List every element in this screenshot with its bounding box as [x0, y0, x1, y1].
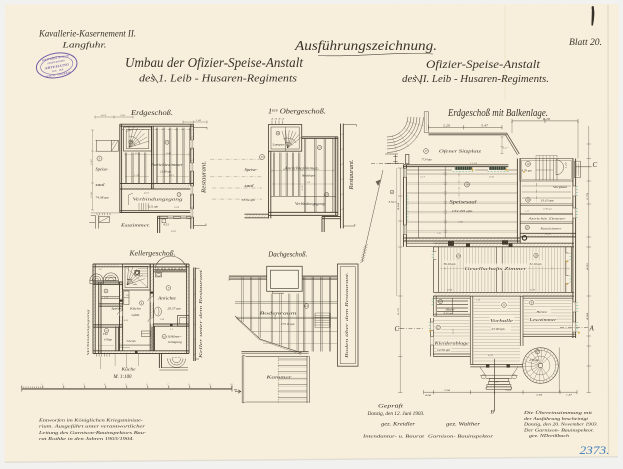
- svg-text:saal: saal: [96, 182, 106, 187]
- svg-text:Keller unter dem Restaurant: Keller unter dem Restaurant: [199, 268, 203, 360]
- svg-text:4.50qm: 4.50qm: [104, 339, 112, 342]
- svg-text:Ofizier-Speise-Anstalt: Ofizier-Speise-Anstalt: [426, 57, 541, 71]
- svg-text:Rauchzimmer: Rauchzimmer: [539, 227, 562, 231]
- svg-text:Dachgeschoß.: Dachgeschoß.: [267, 251, 307, 259]
- svg-text:Ofener Sitzplatz: Ofener Sitzplatz: [439, 148, 481, 153]
- svg-text:90: 90: [126, 295, 129, 297]
- svg-text:gez. NDreißbach: gez. NDreißbach: [529, 433, 570, 438]
- svg-text:4.21: 4.21: [169, 174, 174, 177]
- svg-text:77.34 qm: 77.34 qm: [422, 159, 432, 162]
- svg-text:Langfuhr.: Langfuhr.: [61, 40, 106, 50]
- svg-text:Anrichte: Anrichte: [157, 297, 177, 301]
- svg-text:31.10 qm: 31.10 qm: [530, 263, 542, 266]
- svg-text:des II. Leib - Husaren-Regime: des II. Leib - Husaren-Regiments.: [402, 74, 549, 85]
- svg-text:Anrichtezimmer: Anrichtezimmer: [150, 163, 184, 167]
- svg-text:Intendantur- u. Baurat: Intendantur- u. Baurat: [362, 434, 426, 439]
- svg-text:Ausführungszeichnung.: Ausführungszeichnung.: [294, 39, 437, 54]
- svg-text:Erdgeschoß.: Erdgeschoß.: [130, 108, 173, 117]
- svg-text:11: 11: [105, 329, 107, 332]
- svg-text:Erdgeschoß mit Balkenlage.: Erdgeschoß mit Balkenlage.: [447, 108, 548, 119]
- svg-text:Der Garnison- Bauinspektor.: Der Garnison- Bauinspektor.: [523, 427, 594, 432]
- svg-text:1: 1: [41, 384, 42, 386]
- svg-text:Vorhalle: Vorhalle: [490, 318, 513, 323]
- svg-text:Speisesaal: Speisesaal: [450, 200, 478, 205]
- svg-text:4.51: 4.51: [163, 224, 170, 227]
- svg-text:auf: auf: [127, 278, 133, 281]
- svg-text:Speisek.: Speisek.: [112, 307, 123, 311]
- svg-text:gez. Kreidler: gez. Kreidler: [381, 423, 415, 428]
- svg-text:Heizkörper: Heizkörper: [301, 175, 316, 178]
- svg-text:Verbindungsgang: Verbindungsgang: [133, 198, 183, 202]
- svg-text:4.6qm: 4.6qm: [389, 201, 397, 204]
- svg-text:Gefälle: Gefälle: [132, 314, 141, 317]
- svg-text:Flur: Flur: [102, 333, 109, 336]
- svg-text:Speise-: Speise-: [245, 167, 258, 172]
- svg-text:Leitung des Garnison-Bauinspek: Leitung des Garnison-Bauinspektors Bau-: [38, 430, 147, 435]
- svg-text:2.60: 2.60: [160, 319, 164, 321]
- svg-text:Danzig, den 12. Juni 1903.: Danzig, den 12. Juni 1903.: [366, 412, 424, 417]
- svg-text:Abort: Abort: [444, 309, 455, 312]
- svg-text:53.34 qm: 53.34 qm: [242, 198, 256, 202]
- svg-text:Silber-: Silber-: [168, 336, 182, 339]
- svg-text:rium. Ausgeführt unter verant: rium. Ausgeführt unter verantwortlicher: [39, 424, 145, 429]
- svg-text:5.47: 5.47: [481, 125, 489, 128]
- svg-text:m: m: [234, 389, 237, 392]
- svg-text:4: 4: [104, 383, 105, 386]
- svg-text:13: 13: [261, 155, 265, 159]
- svg-text:9: 9: [209, 384, 210, 386]
- svg-text:M. 1:100: M. 1:100: [113, 375, 132, 380]
- svg-text:4.79 qm: 4.79 qm: [522, 170, 532, 173]
- svg-text:1.26: 1.26: [476, 300, 480, 302]
- svg-text:Kleiderablage: Kleiderablage: [433, 341, 469, 345]
- svg-text:Esszimmer.: Esszimmer.: [119, 222, 150, 227]
- svg-text:Anrichtezimmer: Anrichtezimmer: [283, 167, 318, 171]
- svg-text:173.11 qm: 173.11 qm: [281, 322, 296, 326]
- svg-text:8.21 qm: 8.21 qm: [148, 206, 158, 209]
- svg-text:21.38 qm: 21.38 qm: [160, 171, 171, 174]
- svg-text:4.70 qm: 4.70 qm: [529, 359, 539, 362]
- svg-text:131.63 qm: 131.63 qm: [452, 209, 474, 213]
- svg-text:saal: saal: [245, 183, 255, 188]
- svg-text:1tes Obergeschoß.: 1tes Obergeschoß.: [268, 107, 326, 116]
- svg-text:2373.: 2373.: [580, 443, 610, 457]
- svg-text:5.04 qm: 5.04 qm: [127, 340, 136, 343]
- svg-text:gez. Walther: gez. Walther: [446, 423, 480, 428]
- svg-text:4.05: 4.05: [124, 319, 128, 322]
- svg-text:des 1. Leib - Husaren-Regimen: des 1. Leib - Husaren-Regiments: [139, 74, 297, 85]
- svg-text:Umbau der Ofizier-Speise-Ansta: Umbau der Ofizier-Speise-Anstalt: [125, 55, 304, 70]
- svg-text:1.30: 1.30: [104, 297, 108, 299]
- svg-text:3 3 3 3: 3 3 3 3: [271, 118, 286, 121]
- svg-text:4.21: 4.21: [144, 192, 149, 195]
- svg-text:A: A: [589, 325, 595, 333]
- svg-text:2.0: 2.0: [99, 269, 102, 271]
- svg-text:Lampen: Lampen: [271, 143, 285, 147]
- svg-text:Vorplatz: Vorplatz: [553, 186, 568, 189]
- svg-text:reinigung: reinigung: [168, 341, 183, 344]
- svg-text:2: 2: [62, 384, 63, 386]
- svg-text:Verbindungsgang: Verbindungsgang: [86, 309, 90, 356]
- svg-text:Boden über dem Restaurant.: Boden über dem Restaurant.: [345, 272, 349, 358]
- svg-text:1.01: 1.01: [437, 233, 441, 235]
- svg-text:2.20: 2.20: [443, 124, 451, 127]
- svg-text:Speise-: Speise-: [96, 167, 109, 172]
- svg-text:Restaurant.: Restaurant.: [202, 161, 208, 194]
- svg-text:rat Rothke in den Jahren 1903/: rat Rothke in den Jahren 1903/1904.: [39, 436, 134, 441]
- svg-text:Restaurant.: Restaurant.: [349, 160, 355, 191]
- svg-text:8.10: 8.10: [543, 118, 551, 121]
- svg-text:Die Übereinstimmung mit: Die Übereinstimmung mit: [523, 410, 594, 415]
- svg-text:26.57 qm: 26.57 qm: [168, 308, 181, 311]
- svg-text:3.30 qm: 3.30 qm: [543, 209, 553, 211]
- svg-text:11: 11: [439, 300, 441, 303]
- svg-text:Garnison- Bauinspektor: Garnison- Bauinspektor: [428, 434, 493, 439]
- svg-text:36.10 qm: 36.10 qm: [444, 263, 456, 266]
- svg-text:4.50 qm: 4.50 qm: [444, 312, 453, 315]
- svg-text:7.01: 7.01: [505, 389, 511, 392]
- svg-text:1.5: 1.5: [170, 329, 173, 331]
- svg-text:5: 5: [125, 384, 126, 386]
- svg-text:Gesellschafts Zimmer: Gesellschafts Zimmer: [465, 266, 527, 271]
- svg-text:Kavallerie-Kasernement II.: Kavallerie-Kasernement II.: [38, 29, 136, 39]
- svg-text:Anrichte Zimmer: Anrichte Zimmer: [527, 216, 567, 220]
- svg-text:13.10 qm: 13.10 qm: [541, 200, 554, 203]
- svg-text:Blatt 20.: Blatt 20.: [569, 38, 602, 48]
- svg-text:Herren: Herren: [535, 311, 547, 314]
- svg-text:Lesezimmer: Lesezimmer: [528, 318, 558, 322]
- svg-text:27.00 qm: 27.00 qm: [492, 328, 505, 331]
- svg-text:der Ausführung bescheinigt: der Ausführung bescheinigt: [524, 416, 589, 421]
- svg-text:C: C: [395, 325, 400, 333]
- svg-text:Küche: Küche: [129, 307, 142, 311]
- svg-text:Bodenraum: Bodenraum: [260, 310, 298, 315]
- svg-text:C: C: [593, 161, 598, 169]
- svg-text:74.38 qm: 74.38 qm: [96, 196, 110, 200]
- svg-text:Geprüft: Geprüft: [378, 403, 404, 410]
- svg-text:Verbindungsgang.: Verbindungsgang.: [295, 202, 326, 206]
- svg-text:14.50 qm: 14.50 qm: [437, 349, 450, 352]
- svg-text:Entworfen im Königlichen Krieg: Entworfen im Königlichen Kriegsministe-: [38, 418, 144, 423]
- svg-text:Küche: Küche: [120, 367, 136, 372]
- svg-text:3: 3: [83, 384, 84, 386]
